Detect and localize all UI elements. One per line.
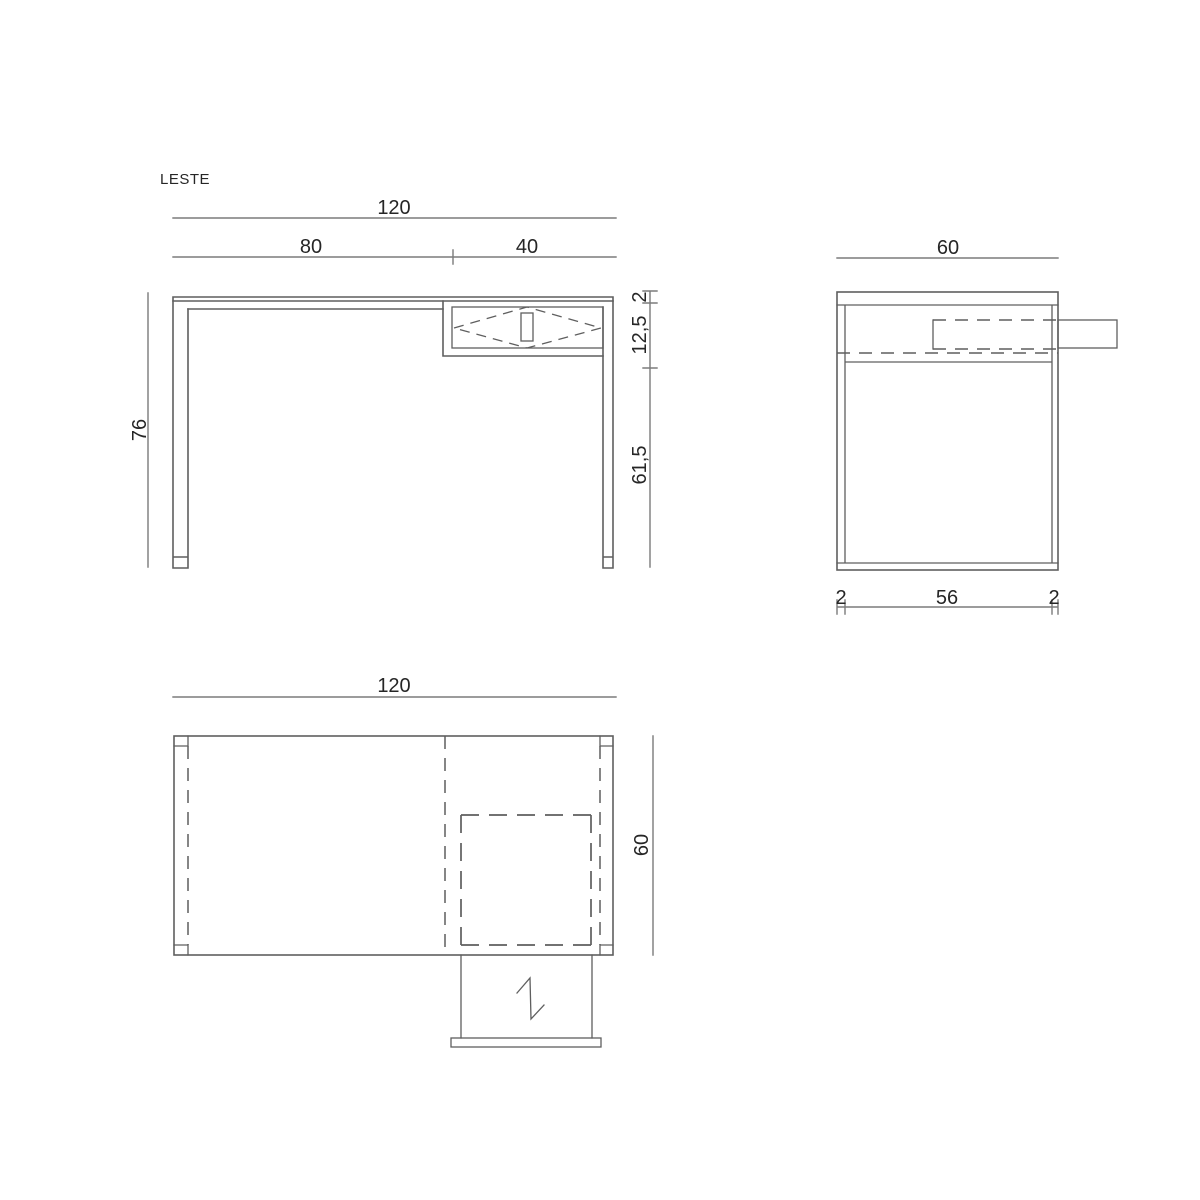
front-dim-drawer-height-label: 12,5 — [629, 316, 651, 355]
front-dim-top-thickness-label: 2 — [629, 291, 651, 302]
technical-drawing-canvas: LESTE 120 80 40 76 2 12,5 61,5 60 — [0, 0, 1200, 1200]
side-view: 60 2 56 2 — [835, 237, 1117, 614]
side-dim-bottom-left-label: 2 — [835, 587, 846, 609]
plan-dim-depth-label: 60 — [631, 834, 653, 856]
plan-drawer-pulled-sides — [461, 955, 592, 1038]
plan-dim-width-label: 120 — [377, 675, 410, 697]
front-dim-total-width-label: 120 — [377, 197, 410, 219]
plan-drawer-front-edge — [451, 1038, 601, 1047]
side-body-inner-lines — [837, 305, 1058, 563]
plan-hidden-edges — [188, 736, 600, 955]
side-drawer-protrusion — [1058, 320, 1117, 348]
plan-drawer-hidden-box — [461, 815, 591, 945]
front-view: LESTE 120 80 40 76 2 12,5 61,5 — [129, 171, 657, 568]
front-dim-drawer-width-label: 40 — [516, 236, 538, 258]
front-right-leg — [603, 301, 613, 568]
side-dim-bottom-center-label: 56 — [936, 587, 958, 609]
side-drawer-hidden — [933, 320, 1058, 349]
side-dim-bottom-right-label: 2 — [1048, 587, 1059, 609]
side-body-outline — [837, 292, 1058, 570]
plan-top-outline — [174, 736, 613, 955]
front-dim-left-width-label: 80 — [300, 236, 322, 258]
front-dim-clearance-label: 61,5 — [629, 446, 651, 485]
plan-view: 120 60 — [173, 675, 653, 1047]
side-dim-depth-label: 60 — [937, 237, 959, 259]
front-dim-split-line — [173, 250, 616, 264]
front-dim-height-label: 76 — [129, 419, 151, 441]
drawing-title: LESTE — [160, 171, 210, 188]
front-drawer-handle — [521, 313, 533, 341]
plan-drawer-opening-arrow — [517, 978, 544, 1019]
plan-corner-leg-marks — [174, 736, 613, 955]
front-left-leg — [173, 301, 188, 568]
